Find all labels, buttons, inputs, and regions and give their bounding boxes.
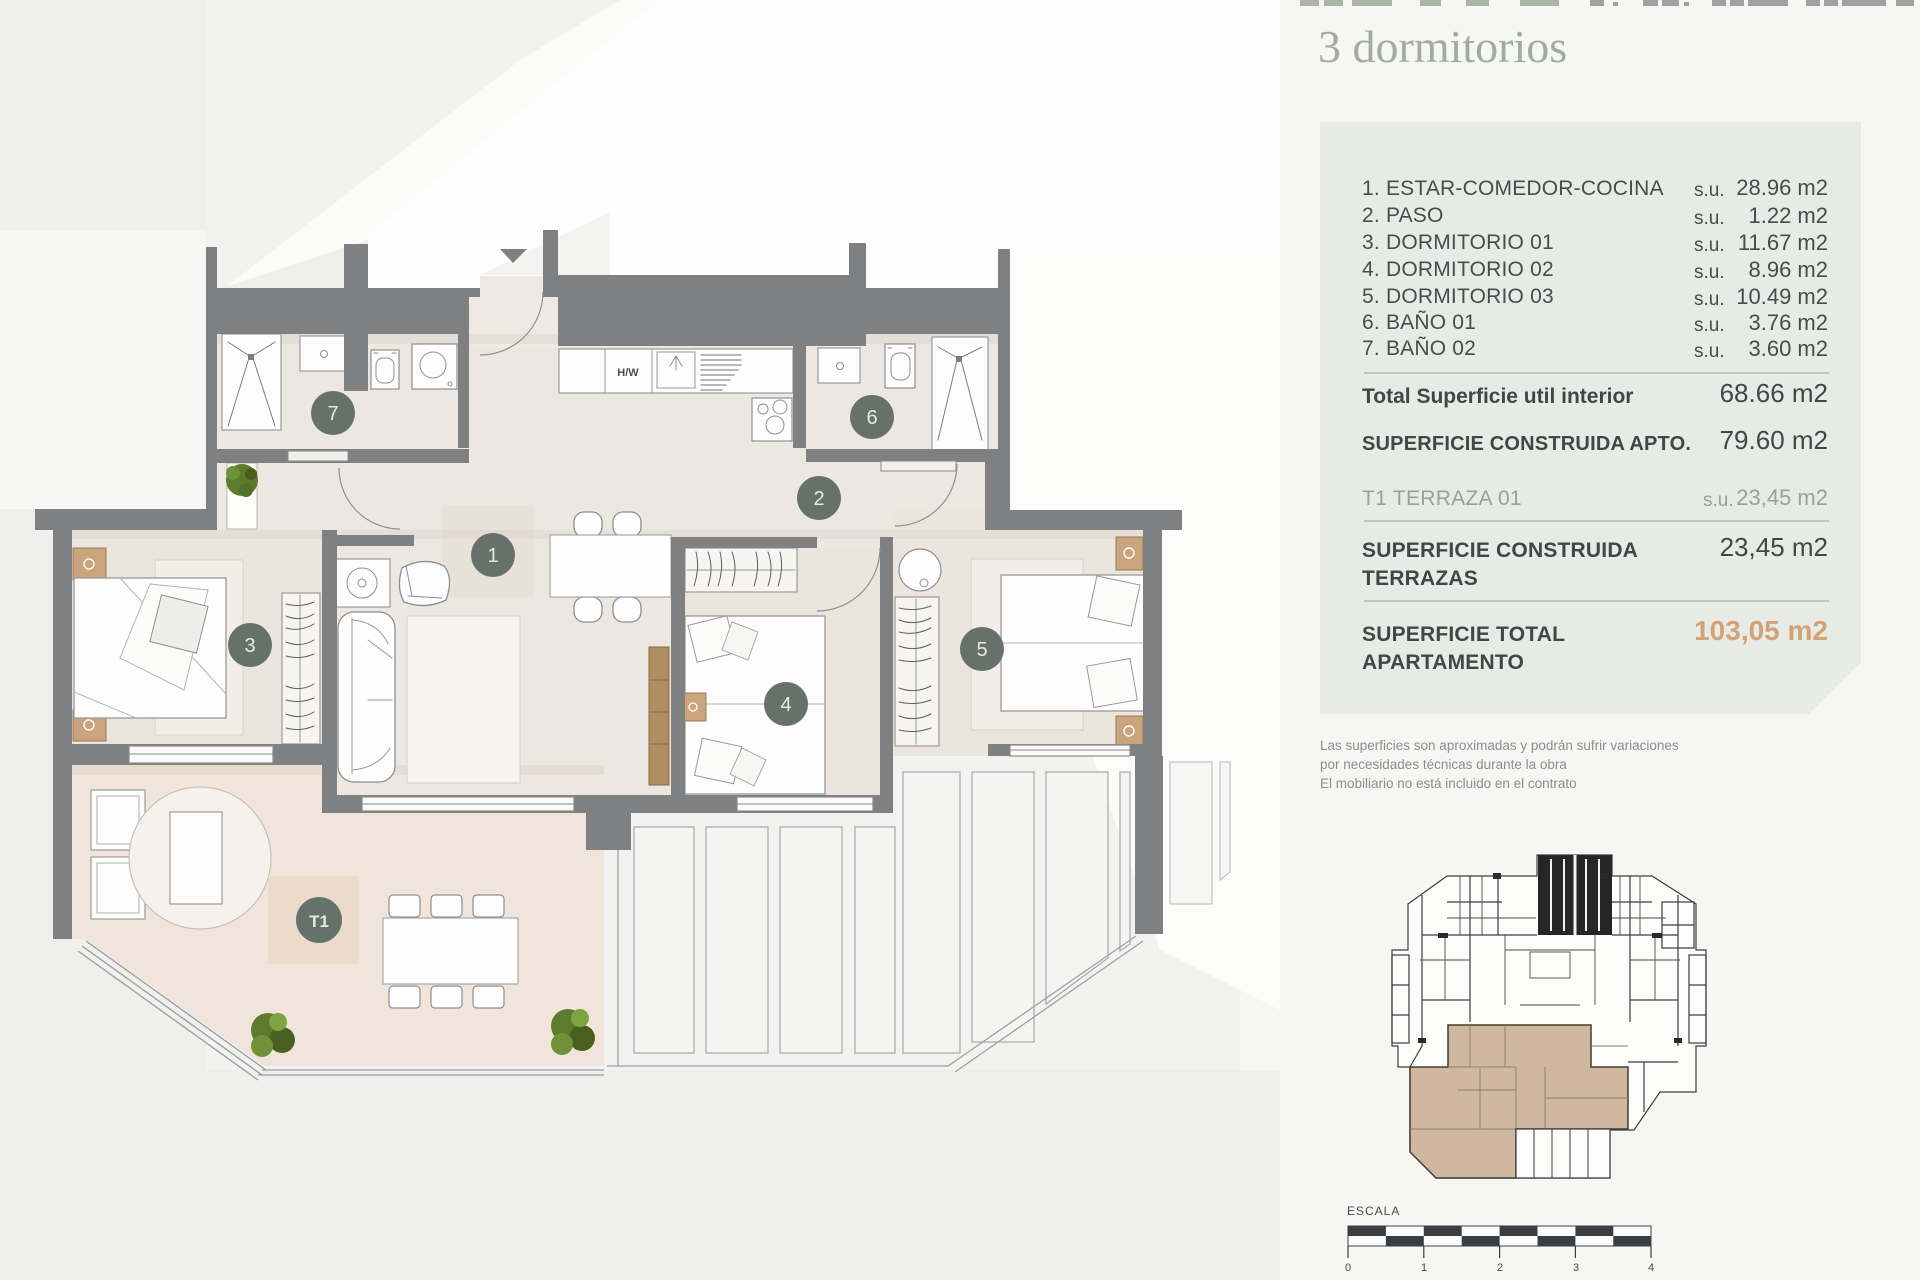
svg-text:H/W: H/W — [617, 367, 639, 379]
svg-text:5: 5 — [976, 639, 987, 661]
svg-text:103,05 m2: 103,05 m2 — [1694, 615, 1828, 646]
svg-text:s.u.: s.u. — [1694, 262, 1725, 283]
svg-text:28.96 m2: 28.96 m2 — [1736, 175, 1828, 200]
svg-text:1. ESTAR-COMEDOR-COCINA: 1. ESTAR-COMEDOR-COCINA — [1362, 177, 1664, 200]
svg-text:23,45 m2: 23,45 m2 — [1736, 485, 1828, 510]
svg-text:4: 4 — [1648, 1262, 1654, 1274]
svg-text:7: 7 — [327, 403, 338, 425]
svg-text:10.49 m2: 10.49 m2 — [1736, 284, 1828, 309]
svg-text:8.96 m2: 8.96 m2 — [1749, 257, 1829, 282]
svg-text:3.76 m2: 3.76 m2 — [1749, 310, 1829, 335]
svg-text:s.u.: s.u. — [1694, 315, 1725, 336]
svg-text:TERRAZAS: TERRAZAS — [1362, 567, 1478, 590]
svg-text:Las superficies son aproximada: Las superficies son aproximadas y podrán… — [1320, 738, 1679, 753]
svg-text:s.u.: s.u. — [1703, 490, 1734, 511]
svg-text:T1 TERRAZA 01: T1 TERRAZA 01 — [1362, 487, 1522, 510]
svg-text:3: 3 — [244, 635, 255, 657]
svg-text:79.60 m2: 79.60 m2 — [1720, 425, 1828, 455]
svg-text:1.22 m2: 1.22 m2 — [1749, 203, 1829, 228]
svg-text:SUPERFICIE TOTAL: SUPERFICIE TOTAL — [1362, 623, 1565, 646]
svg-text:7. BAÑO 02: 7. BAÑO 02 — [1362, 336, 1476, 360]
svg-text:SUPERFICIE CONSTRUIDA APTO.: SUPERFICIE CONSTRUIDA APTO. — [1362, 433, 1691, 455]
svg-text:4. DORMITORIO 02: 4. DORMITORIO 02 — [1362, 258, 1554, 281]
svg-text:1: 1 — [1421, 1262, 1427, 1274]
svg-text:T1: T1 — [309, 912, 329, 931]
svg-text:Total Superficie util interior: Total Superficie util interior — [1362, 385, 1633, 408]
svg-text:3. DORMITORIO 01: 3. DORMITORIO 01 — [1362, 231, 1554, 254]
svg-text:s.u.: s.u. — [1694, 180, 1725, 201]
svg-text:2: 2 — [1497, 1262, 1503, 1274]
svg-text:ESCALA: ESCALA — [1347, 1204, 1400, 1218]
svg-text:6: 6 — [866, 407, 877, 429]
svg-text:23,45 m2: 23,45 m2 — [1720, 532, 1828, 562]
svg-text:4: 4 — [780, 694, 791, 716]
svg-text:3.60 m2: 3.60 m2 — [1749, 336, 1829, 361]
svg-text:0: 0 — [1345, 1262, 1351, 1274]
svg-text:3: 3 — [1573, 1262, 1579, 1274]
svg-text:68.66 m2: 68.66 m2 — [1720, 378, 1828, 408]
svg-text:6. BAÑO 01: 6. BAÑO 01 — [1362, 310, 1476, 334]
svg-text:APARTAMENTO: APARTAMENTO — [1362, 651, 1524, 674]
svg-text:s.u.: s.u. — [1694, 235, 1725, 256]
svg-text:s.u.: s.u. — [1694, 341, 1725, 362]
svg-text:2: 2 — [813, 488, 824, 510]
svg-text:SUPERFICIE CONSTRUIDA: SUPERFICIE CONSTRUIDA — [1362, 539, 1638, 562]
svg-text:1: 1 — [487, 545, 498, 567]
svg-text:2. PASO: 2. PASO — [1362, 204, 1444, 227]
svg-text:El mobiliario no está incluido: El mobiliario no está incluido en el con… — [1320, 776, 1577, 791]
svg-text:por necesidades técnicas duran: por necesidades técnicas durante la obra — [1320, 757, 1567, 772]
svg-text:5. DORMITORIO 03: 5. DORMITORIO 03 — [1362, 285, 1554, 308]
svg-text:s.u.: s.u. — [1694, 289, 1725, 310]
svg-text:11.67 m2: 11.67 m2 — [1738, 230, 1828, 255]
svg-text:3 dormitorios: 3 dormitorios — [1318, 21, 1567, 72]
svg-text:s.u.: s.u. — [1694, 208, 1725, 229]
